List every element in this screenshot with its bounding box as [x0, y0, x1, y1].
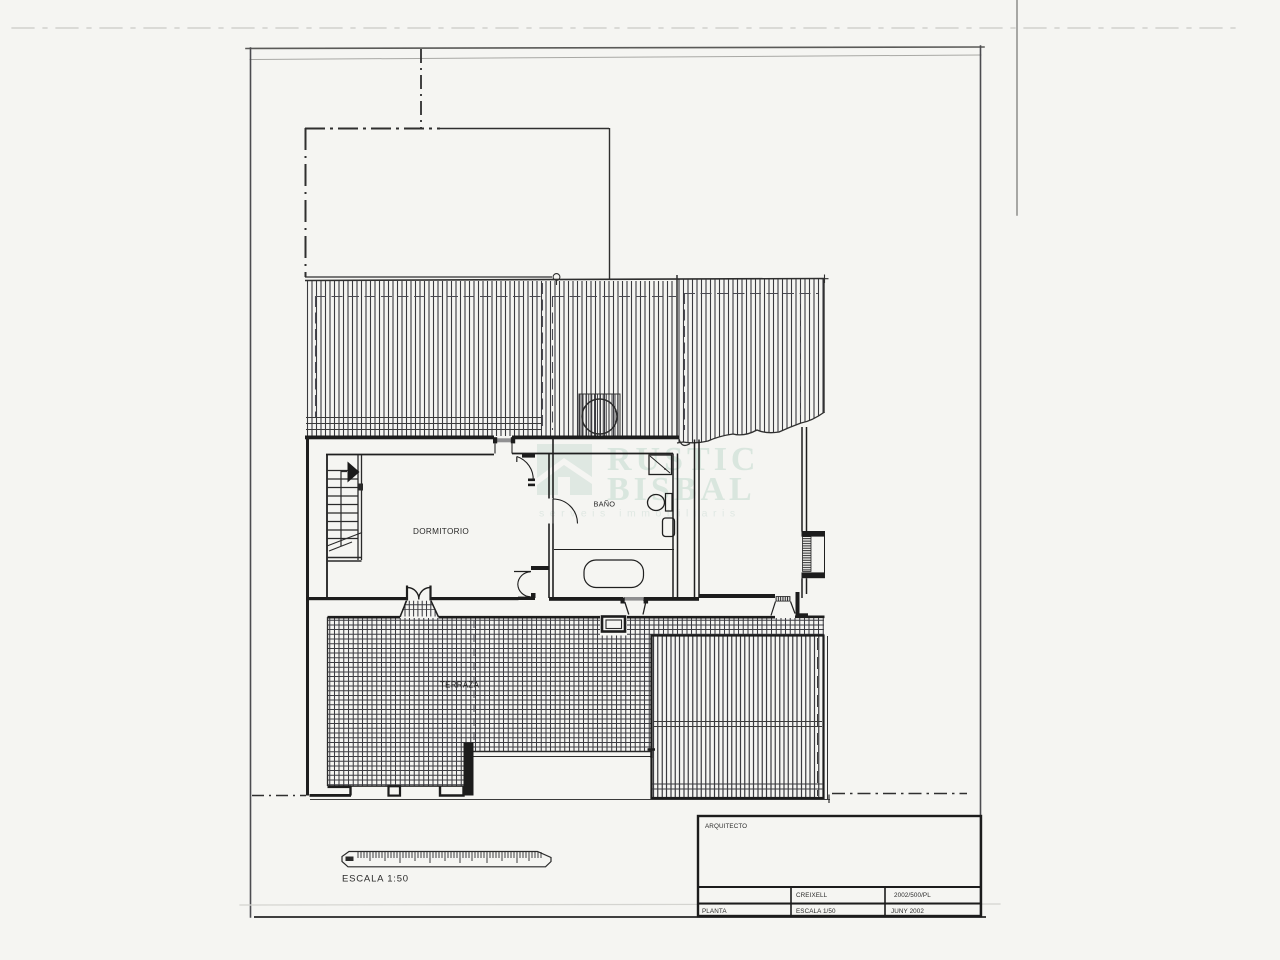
svg-text:2002/500/PL: 2002/500/PL	[894, 892, 931, 899]
svg-text:serveis immobiliaris: serveis immobiliaris	[539, 508, 741, 520]
svg-text:TERRAZA: TERRAZA	[440, 681, 480, 690]
svg-text:ESCALA 1/50: ESCALA 1/50	[796, 908, 836, 915]
svg-text:BAÑO: BAÑO	[594, 500, 616, 509]
svg-text:BISBAL: BISBAL	[607, 471, 756, 508]
svg-text:ESCALA 1:50: ESCALA 1:50	[342, 874, 409, 885]
svg-text:DORMITORIO: DORMITORIO	[413, 527, 469, 536]
svg-text:PLANTA: PLANTA	[702, 908, 727, 915]
svg-text:CREIXELL: CREIXELL	[796, 892, 828, 899]
svg-text:ARQUITECTO: ARQUITECTO	[705, 823, 747, 830]
svg-text:JUNY 2002: JUNY 2002	[891, 908, 924, 915]
